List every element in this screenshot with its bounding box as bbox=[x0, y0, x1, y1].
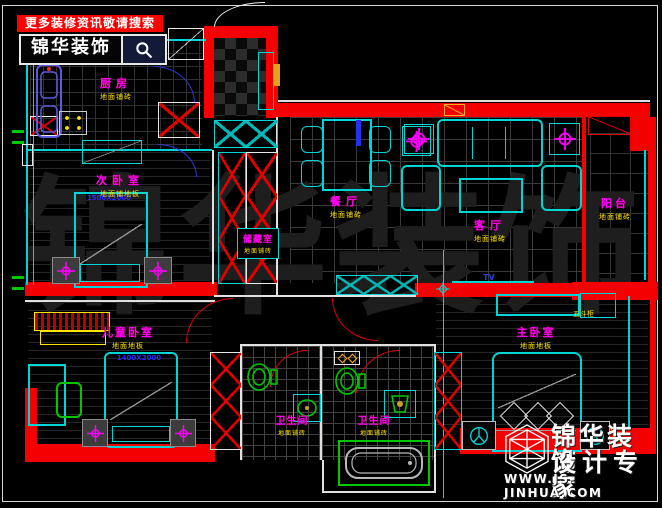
room-label-dining: 餐厅 地面铺砖 bbox=[330, 193, 362, 220]
bed bbox=[104, 352, 178, 448]
floor-finish: 地面铺砖 bbox=[100, 92, 132, 102]
wall-line bbox=[322, 491, 436, 493]
bathtub bbox=[338, 440, 430, 486]
room-label-master-bedroom: 主卧室 地面地板 bbox=[517, 324, 556, 351]
ceiling-light-icon bbox=[170, 419, 196, 447]
ceiling-light-icon bbox=[144, 257, 172, 284]
ceiling-light-icon bbox=[402, 126, 431, 156]
stove bbox=[59, 111, 87, 135]
room-label-kitchen: 厨房 地面铺砖 bbox=[100, 75, 132, 102]
wall-line bbox=[25, 300, 215, 302]
room-label-bath-a: 卫生间 地面铺砖 bbox=[276, 412, 309, 437]
accessory-box bbox=[334, 351, 360, 365]
storage-shaft bbox=[246, 152, 278, 284]
table-runner bbox=[356, 120, 361, 146]
sofa bbox=[437, 119, 543, 167]
ceiling-fan-icon bbox=[462, 421, 496, 450]
room-name: 次卧室 bbox=[96, 172, 144, 188]
wall-line bbox=[628, 296, 630, 428]
room-name: 主卧室 bbox=[517, 324, 556, 340]
pillow bbox=[80, 264, 140, 282]
wall-segment bbox=[648, 117, 656, 297]
armchair bbox=[401, 165, 441, 211]
room-name: 卫生间 bbox=[358, 412, 391, 427]
door-leaf bbox=[273, 64, 280, 86]
window-marker bbox=[12, 276, 24, 279]
logo-website: WWW.JS-JINHUA.COM bbox=[504, 472, 662, 500]
room-label-balcony: 阳台 地面铺砖 bbox=[599, 195, 631, 222]
window-marker bbox=[12, 141, 24, 144]
wall-segment bbox=[650, 296, 656, 430]
toilet-icon bbox=[334, 366, 366, 396]
floor-finish: 地面铺砖 bbox=[474, 234, 506, 244]
wall-line bbox=[278, 100, 650, 102]
flue-shaft bbox=[158, 102, 200, 138]
room-name: 卫生间 bbox=[276, 412, 309, 427]
balcony-window bbox=[588, 116, 632, 135]
window bbox=[22, 144, 33, 166]
room-name: 客厅 bbox=[474, 217, 506, 233]
floor-plan: 锦华装饰 bbox=[0, 0, 662, 508]
room-name: 储藏室 bbox=[238, 232, 278, 245]
cube-logo-icon bbox=[504, 424, 550, 474]
wall-line bbox=[212, 150, 214, 284]
brand-name: 锦华装饰 bbox=[31, 37, 111, 58]
floor-finish: 地面铺砖 bbox=[276, 428, 309, 437]
floor-finish: 地面地板 bbox=[102, 341, 154, 351]
switch-symbol bbox=[444, 104, 465, 116]
corridor-cabinet bbox=[258, 52, 274, 110]
room-name: 厨房 bbox=[100, 75, 132, 91]
room-label-kids-bedroom: 儿童卧室 地面地板 bbox=[102, 324, 154, 351]
chair bbox=[369, 160, 391, 187]
wall-segment bbox=[630, 103, 648, 151]
dresser bbox=[82, 140, 142, 164]
bed-cover-line bbox=[80, 224, 142, 264]
wall-line bbox=[644, 150, 646, 280]
ceiling-light-icon bbox=[549, 123, 580, 155]
hook-icon bbox=[347, 353, 357, 363]
floor-finish: 地面铺砖 bbox=[330, 210, 362, 220]
dining-table bbox=[322, 119, 372, 191]
hook-icon bbox=[337, 353, 347, 363]
tv-label: TV bbox=[483, 273, 495, 282]
hallway-closet bbox=[336, 275, 418, 295]
room-name: 阳台 bbox=[599, 195, 631, 211]
wall-segment bbox=[582, 117, 586, 285]
room-label-second-bedroom: 次卧室 地面铺地板 bbox=[96, 172, 144, 199]
search-box bbox=[121, 34, 167, 65]
window-marker bbox=[12, 130, 24, 133]
room-label-living: 客厅 地面铺砖 bbox=[474, 217, 506, 244]
floor-finish: 地面铺地板 bbox=[96, 189, 144, 199]
magnifier-icon bbox=[134, 40, 154, 60]
armchair bbox=[541, 165, 582, 211]
pillow bbox=[112, 426, 170, 442]
master-wardrobe bbox=[434, 352, 462, 450]
room-name: 儿童卧室 bbox=[102, 324, 154, 340]
toilet-icon bbox=[246, 362, 278, 392]
floor-finish: 地面铺砖 bbox=[238, 246, 278, 255]
floor-finish: 地面地板 bbox=[517, 341, 556, 351]
bed-size-label: 1400X2000 bbox=[117, 354, 161, 362]
ceiling-light-icon bbox=[82, 419, 108, 447]
chair bbox=[369, 126, 391, 153]
bed bbox=[74, 192, 148, 288]
storage-shaft bbox=[218, 152, 246, 284]
room-label-bath-b: 卫生间 地面铺砖 bbox=[358, 412, 391, 437]
window-marker bbox=[12, 287, 24, 290]
wall-line bbox=[33, 39, 34, 285]
chair bbox=[301, 160, 323, 187]
wall-line bbox=[240, 344, 436, 346]
wall-line bbox=[214, 295, 416, 297]
floor-finish: 地面铺砖 bbox=[599, 212, 631, 222]
kids-wardrobe bbox=[210, 352, 242, 450]
room-name: 餐厅 bbox=[330, 193, 362, 209]
floor-finish: 地面铺砖 bbox=[358, 428, 391, 437]
ad-banner-text: 更多装修资讯敬请搜索 bbox=[25, 16, 155, 30]
entry-cabinet bbox=[214, 120, 278, 148]
ad-banner: 更多装修资讯敬请搜索 bbox=[17, 15, 163, 32]
brand-box: 锦华装饰 bbox=[19, 34, 123, 65]
wall-line bbox=[322, 460, 324, 492]
dimension-marker-icon bbox=[436, 282, 450, 296]
chair bbox=[301, 126, 323, 153]
room-label-storage: 储藏室 地面铺砖 bbox=[237, 228, 279, 259]
desk-chair bbox=[56, 382, 82, 418]
tv-cabinet bbox=[496, 294, 580, 316]
cabinet-label: 五斗柜 bbox=[573, 309, 594, 319]
dresser-drawer bbox=[40, 331, 106, 345]
ceiling-light-icon bbox=[52, 257, 80, 284]
dresser bbox=[34, 312, 110, 331]
fridge bbox=[168, 28, 204, 60]
coffee-table bbox=[459, 178, 523, 213]
